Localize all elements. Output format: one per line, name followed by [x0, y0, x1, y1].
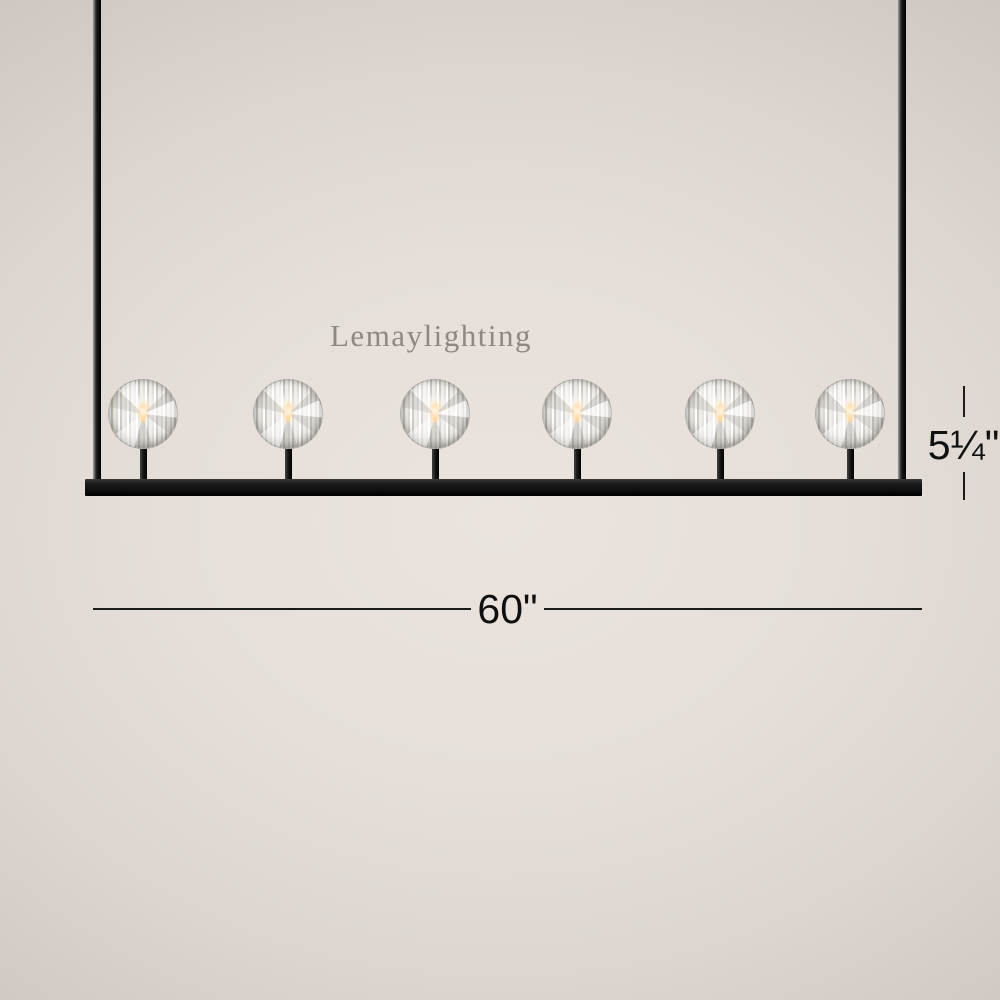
- bulb-filament: [574, 404, 581, 424]
- bulb-filament: [717, 404, 724, 424]
- product-photo: Lemaylighting: [0, 0, 1000, 1000]
- suspension-rod-right: [898, 0, 906, 481]
- lamp: [543, 379, 611, 483]
- fixture-bar: [85, 479, 922, 496]
- width-dimension-line-right: [544, 608, 922, 610]
- width-dimension-line-left: [93, 608, 471, 610]
- width-dimension: 60": [93, 587, 922, 631]
- bulb-filament: [847, 404, 854, 424]
- lamp-stem: [574, 448, 581, 483]
- crystal-globe: [108, 379, 178, 449]
- height-dimension: 5¼": [921, 386, 1000, 500]
- lamp-stem: [432, 448, 439, 483]
- lamp: [401, 379, 469, 483]
- lamp-stem: [717, 448, 724, 483]
- suspension-rod-left: [93, 0, 101, 481]
- lamp-stem: [285, 448, 292, 483]
- height-dimension-label: 5¼": [928, 425, 1000, 466]
- lamp-stem: [847, 448, 854, 483]
- bulb-filament: [140, 404, 147, 424]
- lamp: [109, 379, 177, 483]
- height-dimension-line-top: [963, 386, 965, 417]
- lamp-stem: [140, 448, 147, 483]
- crystal-globe: [542, 379, 612, 449]
- crystal-globe: [685, 379, 755, 449]
- crystal-globe: [400, 379, 470, 449]
- bulb-filament: [432, 404, 439, 424]
- bulb-filament: [285, 404, 292, 424]
- lamp: [686, 379, 754, 483]
- width-dimension-label: 60": [477, 589, 537, 630]
- lamp: [816, 379, 884, 483]
- lamp: [254, 379, 322, 483]
- watermark: Lemaylighting: [330, 318, 532, 354]
- crystal-globe: [815, 379, 885, 449]
- height-dimension-line-bottom: [963, 472, 965, 500]
- crystal-globe: [253, 379, 323, 449]
